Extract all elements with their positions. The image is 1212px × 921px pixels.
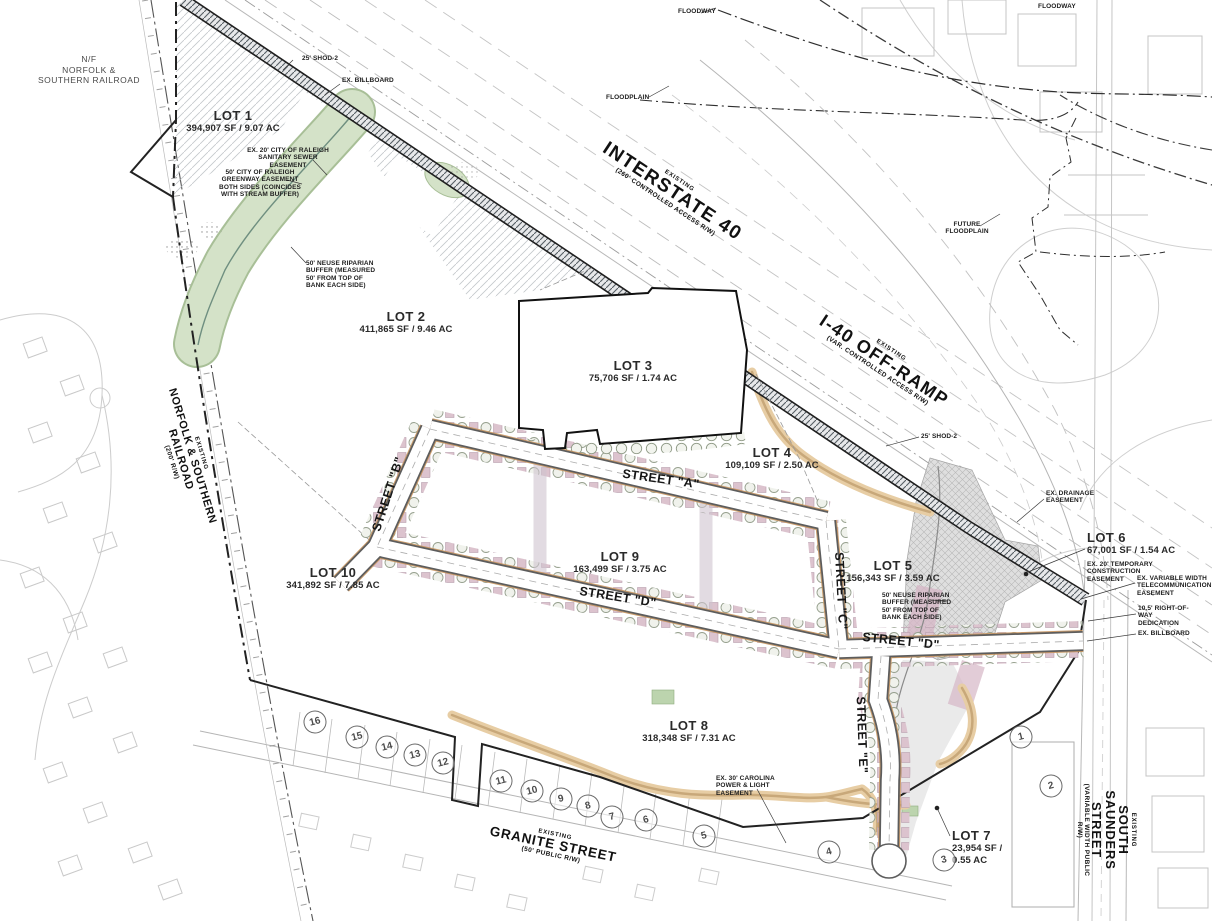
lot-6-area: 67,001 SF / 1.54 AC [1087,545,1175,556]
lot-1-label: LOT 1 394,907 SF / 9.07 AC [186,108,280,134]
note-greenway-easement: 50' CITY OF RALEIGH GREENWAY EASEMENT BO… [212,169,308,199]
lot-5-area: 156,343 SF / 3.59 AC [846,573,940,584]
nf-owner-label: N/F NORFOLK & SOUTHERN RAILROAD [38,54,140,86]
nf-line3: SOUTHERN RAILROAD [38,75,140,86]
lot-2-area: 411,865 SF / 9.46 AC [359,324,452,335]
south-saunders-street-label: EXISTING SOUTH SAUNDERS STREET (VARIABLE… [1076,777,1136,883]
note-billboard-top: EX. BILLBOARD [342,77,394,84]
lot-9-name: LOT 9 [573,549,667,564]
lot-4-area: 109,109 SF / 2.50 AC [725,460,819,471]
lot-3-name: LOT 3 [589,358,677,373]
note-telecom-easement: EX. VARIABLE WIDTH TELECOMMUNICATION EAS… [1137,575,1209,597]
note-row-dedication: 10.5' RIGHT-OF-WAY DEDICATION [1138,605,1194,627]
lot-6-label: LOT 6 67,001 SF / 1.54 AC [1087,530,1175,556]
note-floodplain: FLOODPLAIN [606,94,649,101]
lot-8-label: LOT 8 318,348 SF / 7.31 AC [642,718,736,744]
lot-10-name: LOT 10 [286,565,380,580]
lot-7-label: LOT 7 23,954 SF / 0.55 AC [952,828,1016,867]
lot-6-name: LOT 6 [1087,530,1175,545]
lot-2-label: LOT 2 411,865 SF / 9.46 AC [359,309,452,335]
nf-line2: NORFOLK & [38,65,140,76]
lot-10-label: LOT 10 341,892 SF / 7.85 AC [286,565,380,591]
note-cpl-easement: EX. 30' CAROLINA POWER & LIGHT EASEMENT [716,775,782,797]
lot-1-area: 394,907 SF / 9.07 AC [186,123,280,134]
lot-4-name: LOT 4 [725,445,819,460]
lot-7-name: LOT 7 [952,828,1016,843]
lot-7-area: 23,954 SF / 0.55 AC [952,843,1016,867]
lot-4-label: LOT 4 109,109 SF / 2.50 AC [725,445,819,471]
lot-10-area: 341,892 SF / 7.85 AC [286,580,380,591]
note-sanitary-sewer-easement: EX. 20' CITY OF RALEIGH SANITARY SEWER E… [243,147,333,169]
note-floodway-left: FLOODWAY [678,8,716,15]
note-billboard-right: EX. BILLBOARD [1138,630,1190,637]
note-neuse-buffer-left: 50' NEUSE RIPARIAN BUFFER (MEASURED 50' … [306,260,380,290]
lot-8-area: 318,348 SF / 7.31 AC [642,733,736,744]
note-neuse-buffer-right: 50' NEUSE RIPARIAN BUFFER (MEASURED 50' … [882,592,956,622]
note-shod-top: 25' SHOD-2 [302,55,338,62]
lot-5-name: LOT 5 [846,558,940,573]
lot-8-name: LOT 8 [642,718,736,733]
lot-5-label: LOT 5 156,343 SF / 3.59 AC [846,558,940,584]
lot-3-area: 75,706 SF / 1.74 AC [589,373,677,384]
lot-3-label: LOT 3 75,706 SF / 1.74 AC [589,358,677,384]
street-e-label: STREET "E" [854,696,871,773]
saunders-suffix: (VARIABLE WIDTH PUBLIC R/W) [1076,777,1090,883]
note-drainage-easement: EX. DRAINAGE EASEMENT [1046,490,1104,505]
site-plan-canvas: LOT 1 394,907 SF / 9.07 AC LOT 2 411,865… [0,0,1212,921]
lot-9-area: 163,499 SF / 3.75 AC [573,564,667,575]
lot-9-label: LOT 9 163,499 SF / 3.75 AC [573,549,667,575]
note-shod-mid: 25' SHOD-2 [921,433,957,440]
note-future-floodplain: FUTURE FLOODPLAIN [944,221,990,236]
lot-2-name: LOT 2 [359,309,452,324]
nf-line1: N/F [38,54,140,65]
note-floodway-right: FLOODWAY [1038,3,1076,10]
lot-1-name: LOT 1 [186,108,280,123]
saunders-name: SOUTH SAUNDERS STREET [1090,777,1130,883]
